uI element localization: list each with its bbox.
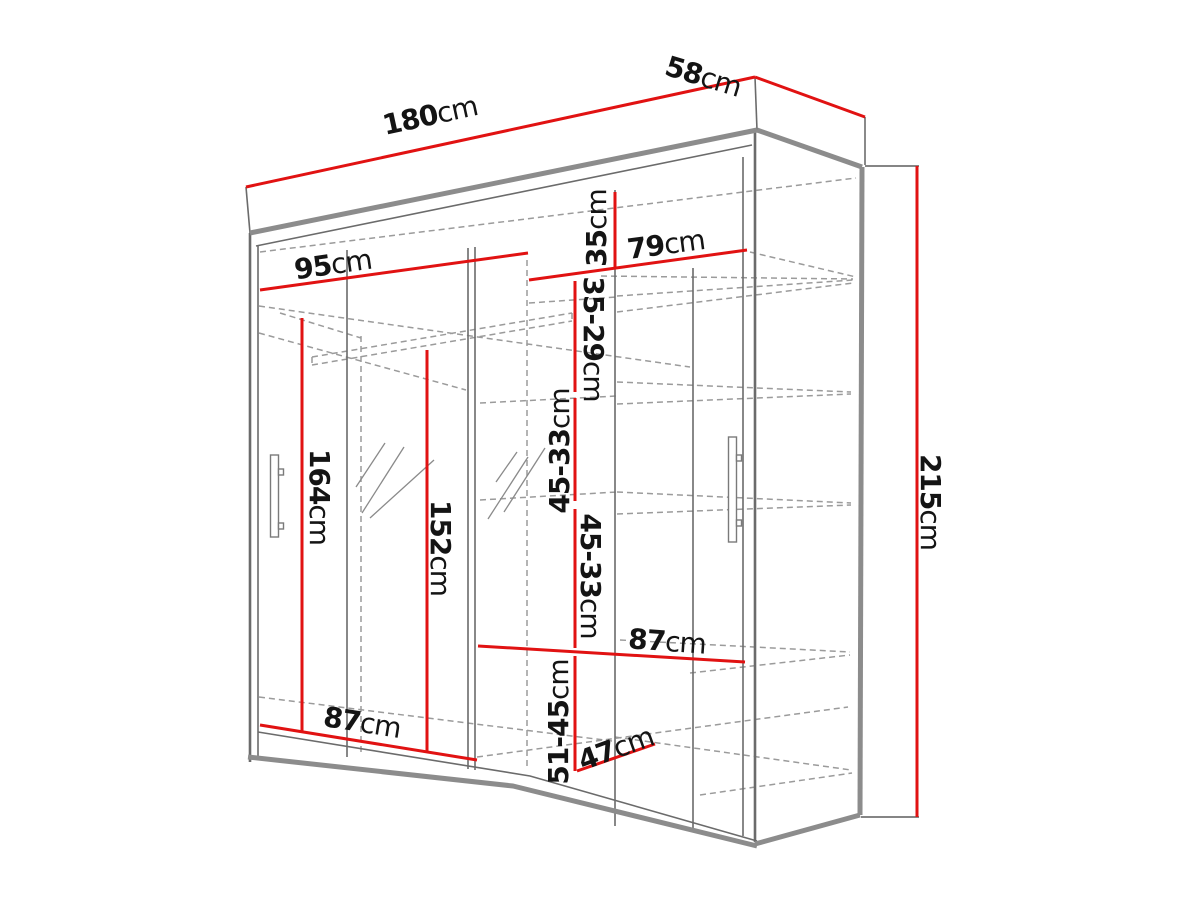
- right-handle-mount-bottom: [737, 520, 742, 526]
- right-door-handle: [729, 437, 737, 542]
- dim-unit: cm: [329, 243, 374, 281]
- left-door-handle: [271, 455, 279, 537]
- dim-unit: cm: [664, 625, 707, 661]
- dim-unit: cm: [303, 504, 336, 545]
- dim-unit: cm: [914, 509, 947, 550]
- dim-unit: cm: [580, 189, 613, 230]
- dim-value: 164: [303, 449, 336, 504]
- dim-unit: cm: [424, 555, 457, 596]
- wardrobe-dimension-diagram: 180cm 58cm 215cm 95cm 79cm 35cm 35-29cm …: [0, 0, 1200, 900]
- dim-value: 215: [914, 454, 947, 509]
- dim-value: 51-45: [542, 700, 575, 785]
- dim-unit: cm: [542, 659, 575, 700]
- dim-value: 35: [580, 230, 613, 267]
- dim-label-35-29cm: 35-29cm: [579, 276, 607, 401]
- dim-label-215cm: 215cm: [916, 454, 944, 550]
- dim-unit: cm: [358, 706, 403, 745]
- dim-label-45-33cm-lower: 45-33cm: [576, 513, 604, 638]
- dim-value: 79: [625, 228, 666, 266]
- dim-unit: cm: [543, 388, 576, 429]
- left-handle-mount-bottom: [279, 523, 284, 529]
- left-handle-mount-top: [279, 469, 284, 475]
- dim-unit: cm: [577, 361, 610, 402]
- side-face: [755, 130, 862, 844]
- dim-label-45-33cm-upper: 45-33cm: [546, 388, 574, 513]
- dim-value: 87: [627, 622, 666, 657]
- right-handle-mount-top: [737, 455, 742, 461]
- dim-label-51-45cm: 51-45cm: [545, 659, 573, 784]
- dim-value: 45-33: [543, 429, 576, 514]
- dim-value: 45-33: [574, 513, 607, 598]
- dim-label-164cm: 164cm: [305, 449, 333, 545]
- dim-value: 87: [321, 700, 363, 738]
- dim-label-35cm: 35cm: [583, 189, 611, 267]
- dim-unit: cm: [662, 223, 707, 261]
- dim-value: 35-29: [577, 276, 610, 361]
- dim-label-152cm: 152cm: [426, 500, 454, 596]
- dim-value: 152: [424, 500, 457, 555]
- dim-unit: cm: [574, 598, 607, 639]
- dim-value: 95: [292, 248, 333, 286]
- extension-lines: [861, 117, 919, 817]
- side-back-edge: [860, 167, 862, 815]
- dim-label-87cm-right: 87cm: [627, 625, 706, 658]
- dim-line-58: [755, 77, 865, 117]
